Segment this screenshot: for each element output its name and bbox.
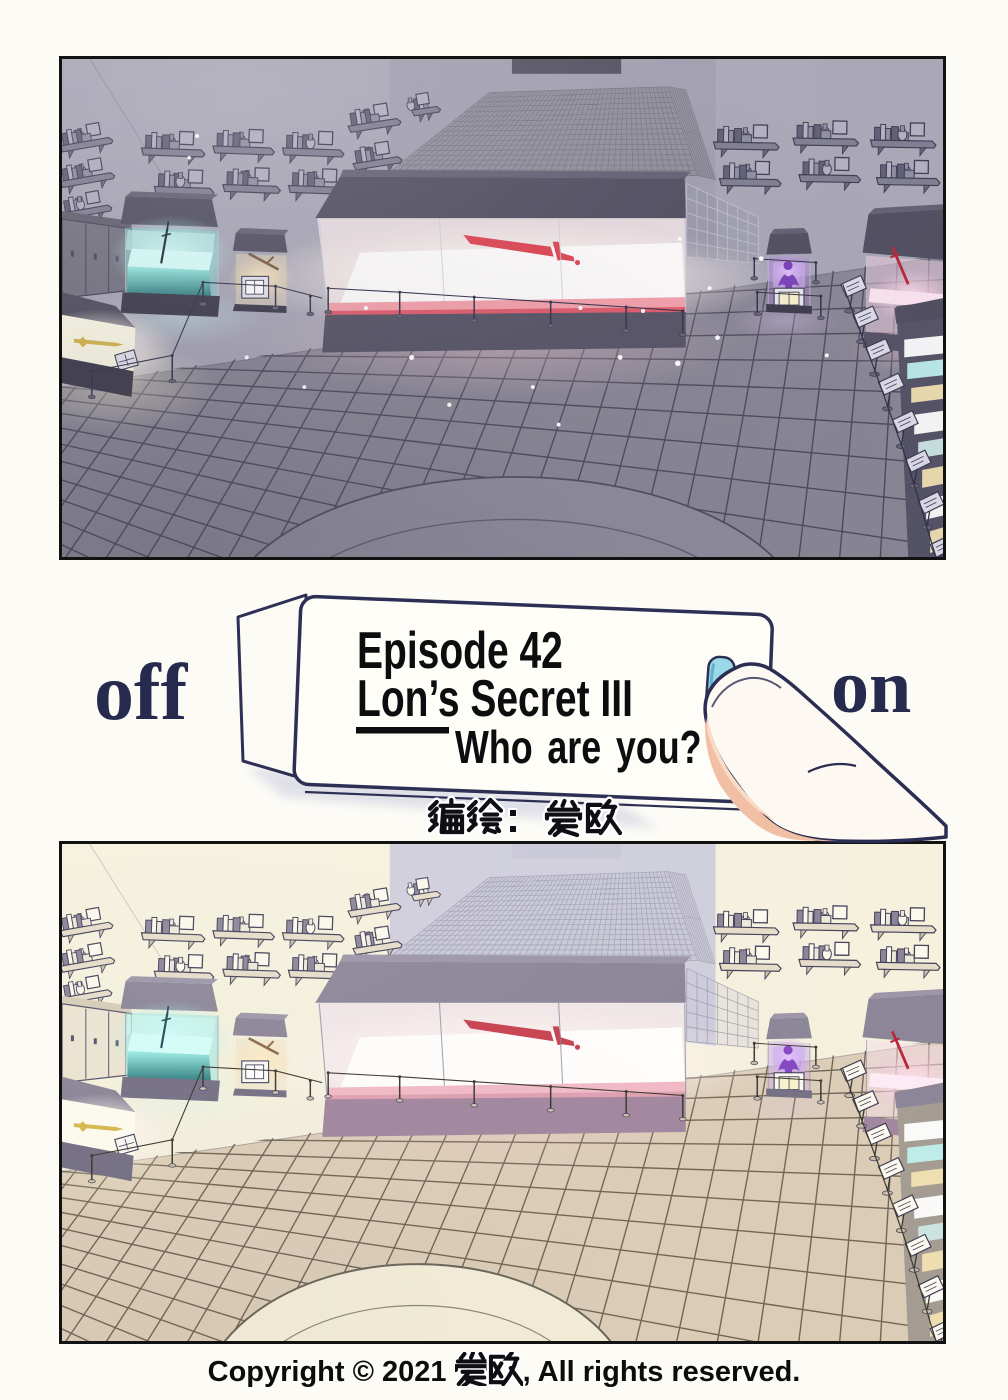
svg-text:on: on xyxy=(831,645,911,729)
svg-text:Who are you?: Who are you? xyxy=(455,722,702,773)
svg-text:off: off xyxy=(94,649,189,737)
svg-text:Lon’s Secret III: Lon’s Secret III xyxy=(357,668,633,727)
